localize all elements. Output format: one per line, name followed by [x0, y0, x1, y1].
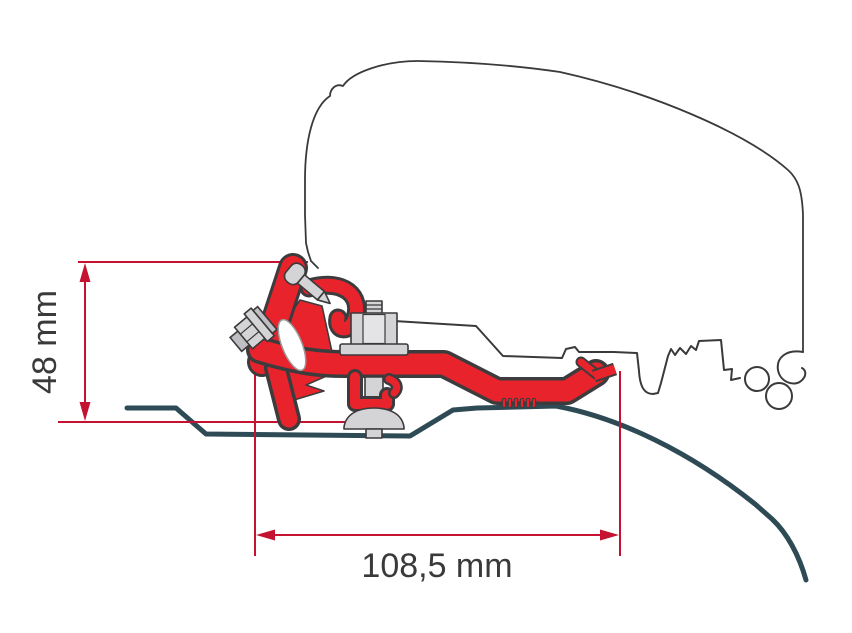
rail-ring-right	[766, 383, 792, 409]
dimension-height-label: 48 mm	[26, 290, 64, 394]
rail-ring-left	[745, 367, 769, 391]
clamp-washer-plate	[340, 344, 408, 355]
technical-diagram: 48 mm 108,5 mm	[0, 0, 852, 633]
dimension-width-label: 108,5 mm	[361, 547, 512, 585]
diagram-canvas: 48 mm 108,5 mm	[0, 0, 852, 633]
rail-c-hook	[778, 351, 806, 383]
arrow-up-icon	[80, 263, 91, 282]
bolt-thread-stub	[366, 301, 382, 314]
clamp-dome-stem	[366, 429, 382, 438]
clamp-nut-face	[363, 315, 385, 344]
arrow-right-icon	[600, 530, 619, 541]
arrow-left-icon	[256, 530, 275, 541]
arrow-down-icon	[80, 402, 91, 421]
